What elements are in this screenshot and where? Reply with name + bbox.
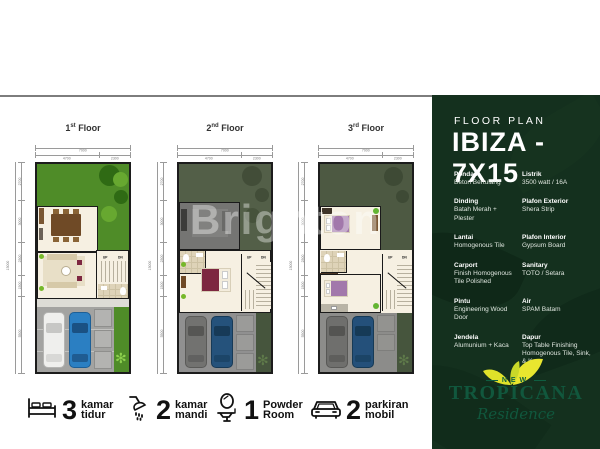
bedroom-2 — [320, 274, 381, 313]
bathroom — [321, 251, 347, 273]
coffee-table — [61, 266, 71, 276]
toilet — [183, 254, 189, 262]
side-ruler-1: 15000 2700 3000 2300 1500 5500 — [11, 162, 25, 374]
pillow — [326, 218, 331, 224]
wardrobe — [322, 208, 332, 214]
car-darkblue — [352, 316, 374, 368]
cushion — [77, 260, 82, 265]
chair — [53, 209, 59, 214]
cushion — [77, 276, 82, 281]
bed-blanket — [202, 269, 219, 291]
bed-icon — [26, 395, 58, 426]
family-room — [179, 202, 240, 250]
floorplan-2: UPDN ✻ — [177, 162, 273, 374]
cabinet — [39, 208, 44, 224]
lawn-strip: ✻ — [397, 313, 412, 372]
stairs: UPDN — [98, 254, 128, 282]
stairs: UPDN — [241, 254, 270, 311]
legend: 3 kamartidur 2 kamarmandi — [26, 386, 416, 434]
side-table — [181, 276, 186, 288]
sink — [337, 253, 344, 257]
legend-bedrooms: 3 kamartidur — [26, 395, 126, 426]
bush — [384, 167, 403, 186]
bed — [201, 268, 231, 292]
bush — [245, 208, 260, 223]
divider-line — [0, 95, 433, 97]
desk — [372, 215, 378, 231]
dn-label: DN — [402, 256, 407, 259]
kitchen-sink — [331, 306, 337, 310]
spec-item: LantaiHomogenous Tile — [454, 234, 518, 250]
bedroom-1 — [320, 206, 381, 250]
dn-label: DN — [118, 256, 123, 259]
chair — [53, 237, 59, 242]
logo-sub: Residence — [440, 405, 592, 423]
tropicana-logo: NEW TROPICANA Residence — [440, 357, 592, 423]
top-ruler-1: 7000 4700 2300 — [35, 140, 131, 160]
plant — [373, 303, 379, 309]
floor-label-2: 2nd Floor — [177, 123, 273, 133]
paver — [236, 353, 254, 370]
kitchen-counter — [321, 304, 348, 312]
spec-item: Plafon ExteriorShera Strip — [522, 198, 596, 223]
bush — [255, 188, 269, 202]
porch — [37, 299, 129, 307]
console — [39, 228, 43, 240]
chair — [73, 209, 79, 214]
logo-new-label: NEW — [440, 377, 592, 384]
stairs: UPDN — [382, 254, 411, 311]
bush — [242, 166, 262, 186]
legend-count: 2 — [156, 397, 171, 424]
car-gray — [326, 316, 348, 368]
legend-label: PowderRoom — [263, 400, 303, 421]
legend-powder-room: 1 PowderRoom — [214, 393, 310, 428]
car-white — [43, 312, 65, 368]
sink — [101, 286, 107, 290]
spec-item: Plafon InteriorGypsum Board — [522, 234, 596, 250]
car-blue — [69, 312, 91, 368]
spec-item: CarportFinish Homogenous Tile Polished — [454, 262, 518, 287]
plant: ✻ — [257, 353, 269, 367]
spec-item: DindingBatah Merah + Plester — [454, 198, 518, 223]
legend-label: kamartidur — [81, 400, 113, 421]
sofa — [47, 282, 77, 288]
legend-count: 1 — [244, 397, 259, 424]
paver — [236, 315, 254, 332]
chair — [73, 237, 79, 242]
floor-word: Floor — [221, 123, 244, 133]
car-darkblue — [211, 316, 233, 368]
side-ruler-3: 15000 2700 3000 2300 1500 5500 — [294, 162, 308, 374]
paver — [236, 334, 254, 351]
lawn-strip: ✻ — [114, 307, 129, 372]
legend-count: 3 — [62, 397, 77, 424]
up-label: UP — [388, 256, 393, 259]
floorplan-1: UPDN ✻ — [35, 162, 131, 374]
pillow — [222, 281, 228, 289]
chair — [63, 237, 69, 242]
floor-label-1: 1st Floor — [35, 123, 131, 133]
spec-item: SanitaryTOTO / Setara — [522, 262, 596, 287]
sofa — [222, 211, 230, 231]
up-label: UP — [103, 256, 108, 259]
bed — [324, 215, 350, 233]
bush — [114, 190, 128, 204]
legend-parking: 2 parkiranmobil — [310, 395, 410, 426]
toilet — [120, 287, 126, 295]
legend-label: parkiranmobil — [365, 400, 408, 421]
bathroom — [98, 284, 128, 298]
plant — [39, 286, 44, 291]
spec-item: AirSPAM Batam — [522, 298, 596, 323]
plant — [181, 262, 186, 267]
legend-count: 2 — [346, 397, 361, 424]
up-label: UP — [247, 256, 252, 259]
sink — [196, 253, 203, 257]
floor-ord: rd — [353, 123, 359, 129]
floor-ord: nd — [211, 123, 218, 129]
plant — [39, 254, 44, 259]
floor-word: Floor — [362, 123, 385, 133]
pillow — [222, 271, 228, 279]
paver — [94, 351, 112, 369]
floor-word: Floor — [78, 123, 101, 133]
pillow — [326, 289, 330, 294]
pillow — [326, 225, 331, 231]
plant — [373, 208, 379, 214]
bush — [113, 172, 128, 187]
spec-item: Listrik3500 watt / 16A — [522, 171, 596, 187]
paver — [377, 334, 395, 351]
car-gray — [185, 316, 207, 368]
spec-item: PintuEngineering Wood Door — [454, 298, 518, 323]
plant: ✻ — [398, 353, 410, 367]
legend-bathrooms: 2 kamarmandi — [126, 394, 214, 427]
paver — [377, 315, 395, 332]
shower-icon — [126, 394, 152, 427]
floor-ord: st — [70, 123, 75, 129]
paver — [94, 309, 112, 327]
plant — [181, 294, 186, 299]
legend-label: kamarmandi — [175, 400, 207, 421]
bed-blanket — [332, 216, 349, 232]
dn-label: DN — [261, 256, 266, 259]
floor-label-3: 3rd Floor — [318, 123, 414, 133]
car-icon — [310, 395, 342, 426]
flyer-canvas: Brighton 1st Floor 2nd Floor 3rd Floor 7… — [0, 0, 600, 449]
pillow — [326, 283, 330, 288]
toilet — [324, 254, 330, 262]
top-ruler-2: 7000 4700 2300 — [177, 140, 273, 160]
bush — [396, 190, 409, 203]
tv-cabinet — [181, 209, 187, 231]
lawn-strip: ✻ — [256, 313, 271, 372]
bed — [324, 280, 348, 297]
spec-list: PondasiBeton Bertulang Listrik3500 watt … — [454, 171, 596, 367]
chair — [63, 209, 69, 214]
dining-table — [51, 214, 81, 236]
floorplan-3: UPDN ✻ — [318, 162, 414, 374]
side-ruler-2: 15000 2700 3000 2300 1500 5500 — [153, 162, 167, 374]
spec-item: PondasiBeton Bertulang — [454, 171, 518, 187]
bed-blanket — [331, 281, 347, 296]
panel-kicker: FLOOR PLAN — [454, 115, 546, 127]
paver — [94, 330, 112, 348]
top-ruler-3: 7000 4700 2300 — [318, 140, 414, 160]
powder-icon — [214, 393, 240, 428]
sofa — [47, 254, 77, 260]
bush — [101, 206, 117, 222]
plant: ✻ — [115, 351, 127, 365]
